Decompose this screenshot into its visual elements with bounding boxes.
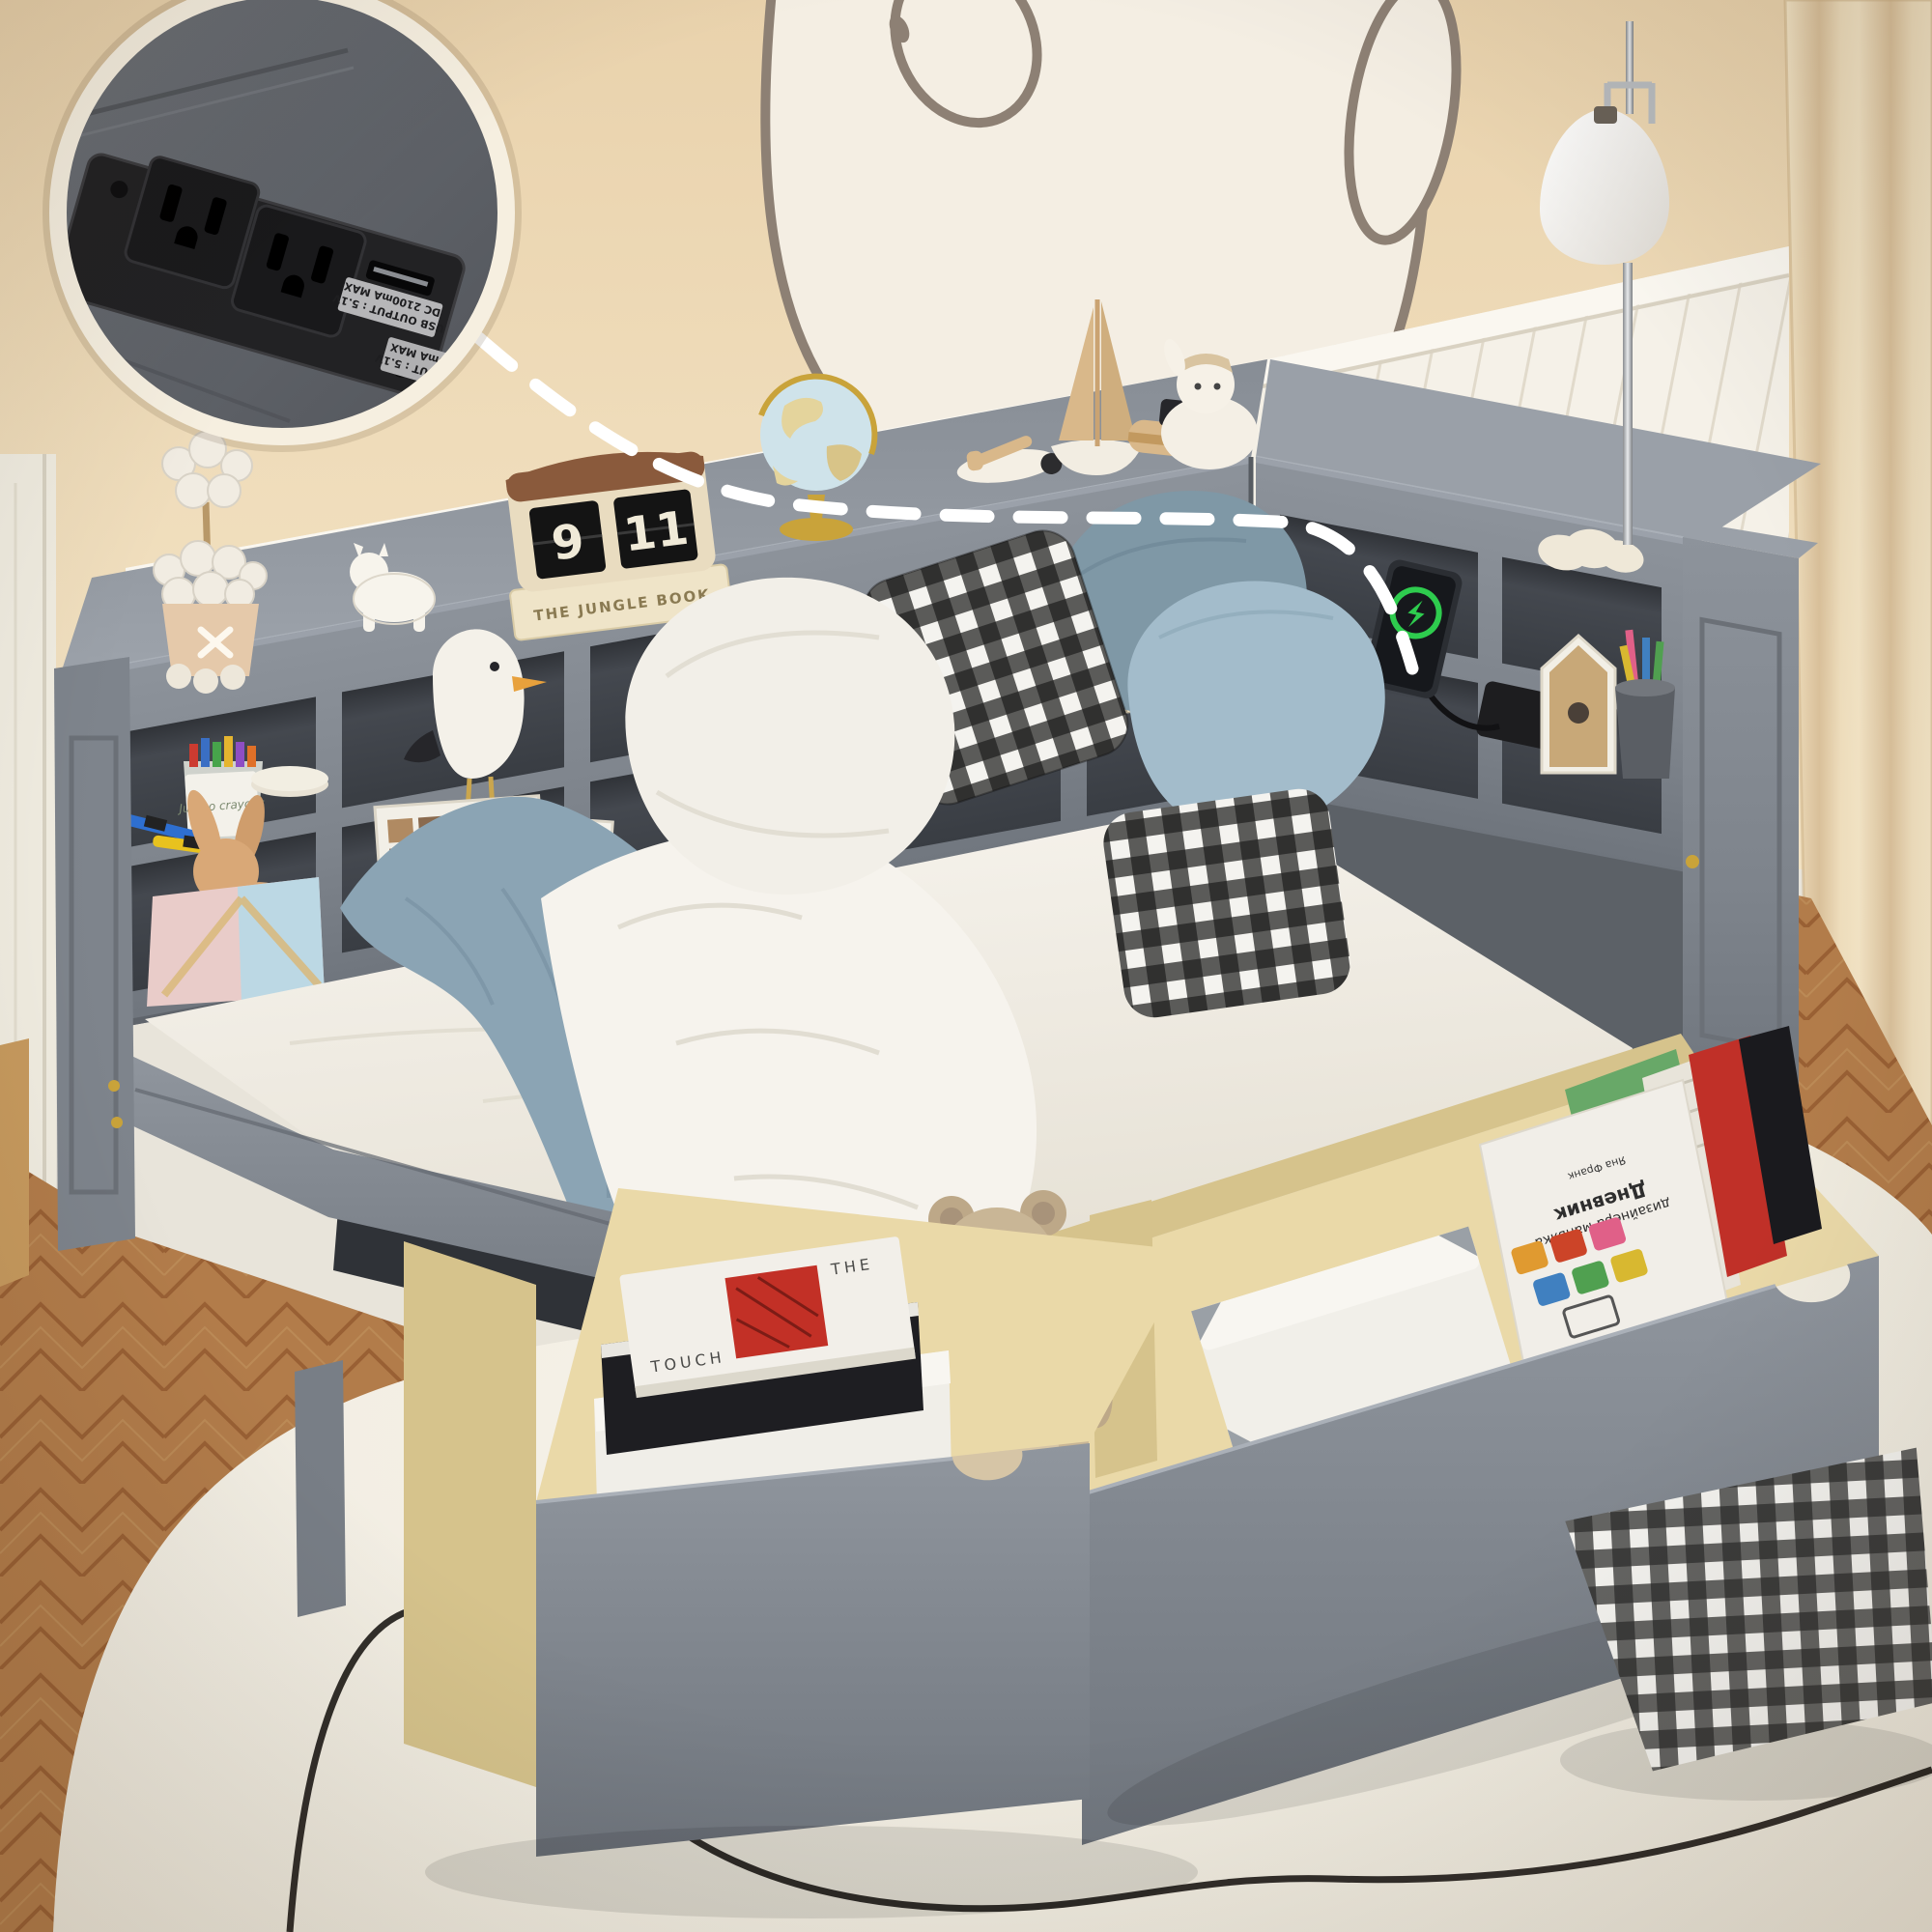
product-photo-kids-daybed: THE JUNGLE BOOK 9 11 Jumbo <box>0 0 1932 1932</box>
vignette-overlay <box>0 0 1932 1932</box>
